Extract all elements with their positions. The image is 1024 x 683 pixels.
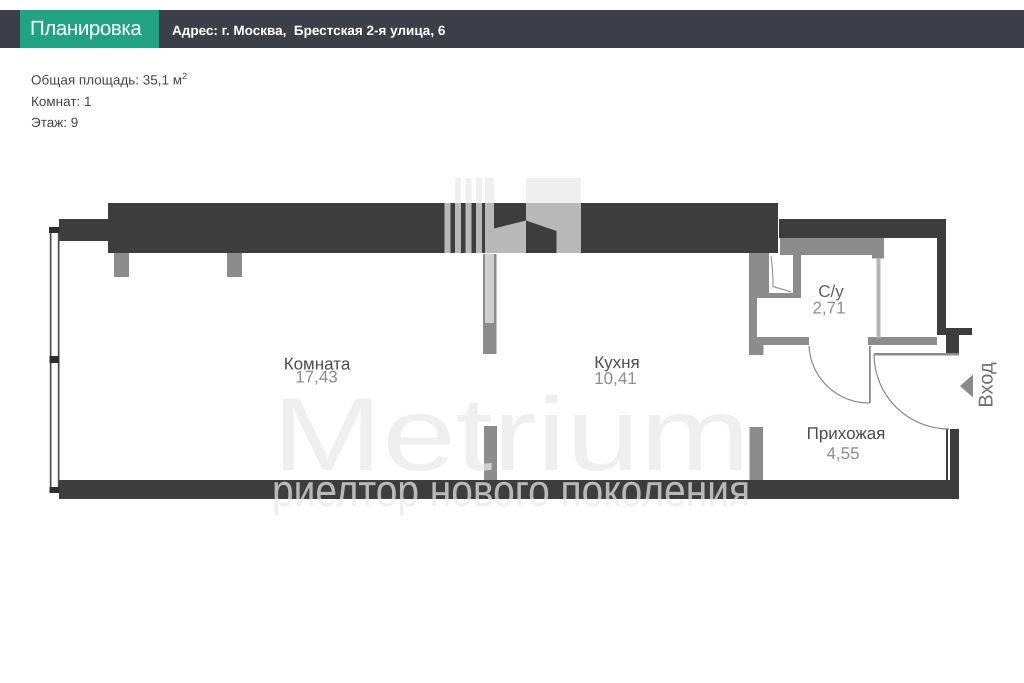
svg-text:риелтор нового поколения: риелтор нового поколения <box>272 465 750 516</box>
svg-text:10,41: 10,41 <box>594 369 637 388</box>
svg-text:Прихожая: Прихожая <box>807 424 886 443</box>
svg-text:Вход: Вход <box>976 362 998 408</box>
svg-text:17,43: 17,43 <box>295 368 338 387</box>
svg-text:2,71: 2,71 <box>812 299 845 318</box>
svg-text:4,55: 4,55 <box>826 444 859 463</box>
